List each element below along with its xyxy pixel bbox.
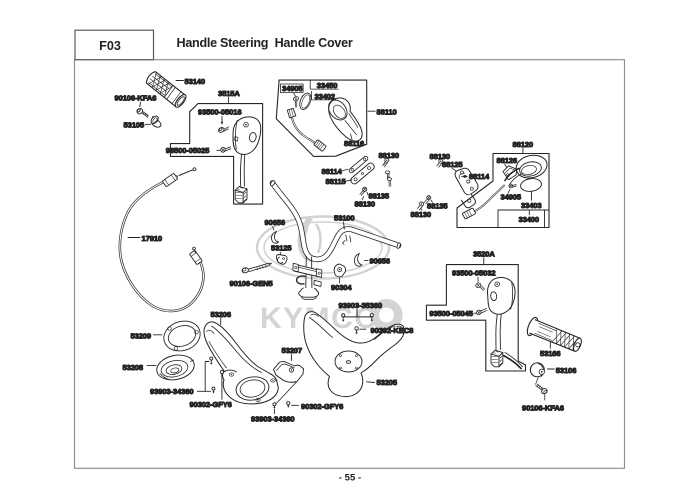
svg-text:90656: 90656 — [265, 218, 286, 227]
svg-text:53207: 53207 — [282, 346, 303, 355]
svg-text:88130: 88130 — [411, 210, 432, 219]
svg-text:90106-GEN5: 90106-GEN5 — [230, 279, 274, 288]
svg-text:33402: 33402 — [315, 92, 336, 101]
svg-text:88120: 88120 — [513, 140, 534, 149]
svg-text:88125: 88125 — [442, 160, 463, 169]
svg-text:53100: 53100 — [334, 213, 355, 222]
svg-text:53208: 53208 — [123, 363, 144, 372]
svg-text:53106: 53106 — [556, 366, 577, 375]
svg-text:93903-34360: 93903-34360 — [251, 415, 294, 424]
svg-text:90656: 90656 — [370, 257, 391, 266]
svg-text:93903-34360: 93903-34360 — [150, 387, 193, 396]
svg-text:53105: 53105 — [124, 121, 145, 130]
svg-text:93500-05016: 93500-05016 — [198, 107, 241, 116]
svg-text:34905: 34905 — [282, 84, 303, 93]
svg-text:- 55 -: - 55 - — [339, 472, 361, 483]
svg-text:90106-KFA6: 90106-KFA6 — [115, 93, 157, 102]
svg-text:88126: 88126 — [497, 156, 518, 165]
svg-text:90302-GFY6: 90302-GFY6 — [190, 400, 232, 409]
svg-text:17910: 17910 — [142, 234, 163, 243]
svg-text:90302-GFY6: 90302-GFY6 — [301, 402, 343, 411]
svg-text:90302-KEC8: 90302-KEC8 — [371, 326, 414, 335]
svg-text:53209: 53209 — [131, 332, 152, 341]
svg-text:34905: 34905 — [501, 192, 522, 201]
svg-text:88114: 88114 — [322, 167, 343, 176]
svg-text:Handle Steering Handle Cover: Handle Steering Handle Cover — [177, 36, 353, 50]
svg-text:53166: 53166 — [540, 349, 561, 358]
svg-text:88130: 88130 — [379, 151, 400, 160]
svg-text:88130: 88130 — [355, 199, 376, 208]
svg-text:90304: 90304 — [331, 283, 352, 292]
svg-text:93903-35360: 93903-35360 — [339, 301, 382, 310]
svg-text:3520A: 3520A — [473, 250, 495, 259]
svg-text:90106-KFA6: 90106-KFA6 — [522, 403, 564, 412]
svg-text:33400: 33400 — [519, 215, 540, 224]
svg-text:33403: 33403 — [521, 201, 542, 210]
svg-text:3515A: 3515A — [218, 89, 240, 98]
svg-text:93500-05025: 93500-05025 — [166, 146, 210, 155]
svg-text:53206: 53206 — [211, 310, 232, 319]
svg-text:33450: 33450 — [317, 81, 338, 90]
svg-text:88114: 88114 — [469, 172, 490, 181]
svg-text:88116: 88116 — [344, 139, 364, 148]
svg-text:53125: 53125 — [271, 244, 292, 253]
svg-text:93500-05032: 93500-05032 — [452, 269, 495, 278]
svg-text:88110: 88110 — [377, 107, 397, 116]
svg-text:88115: 88115 — [326, 177, 347, 186]
svg-text:53205: 53205 — [377, 378, 398, 387]
svg-text:53140: 53140 — [185, 77, 206, 86]
svg-text:F03: F03 — [99, 39, 121, 53]
svg-text:93500-05045: 93500-05045 — [429, 309, 473, 318]
